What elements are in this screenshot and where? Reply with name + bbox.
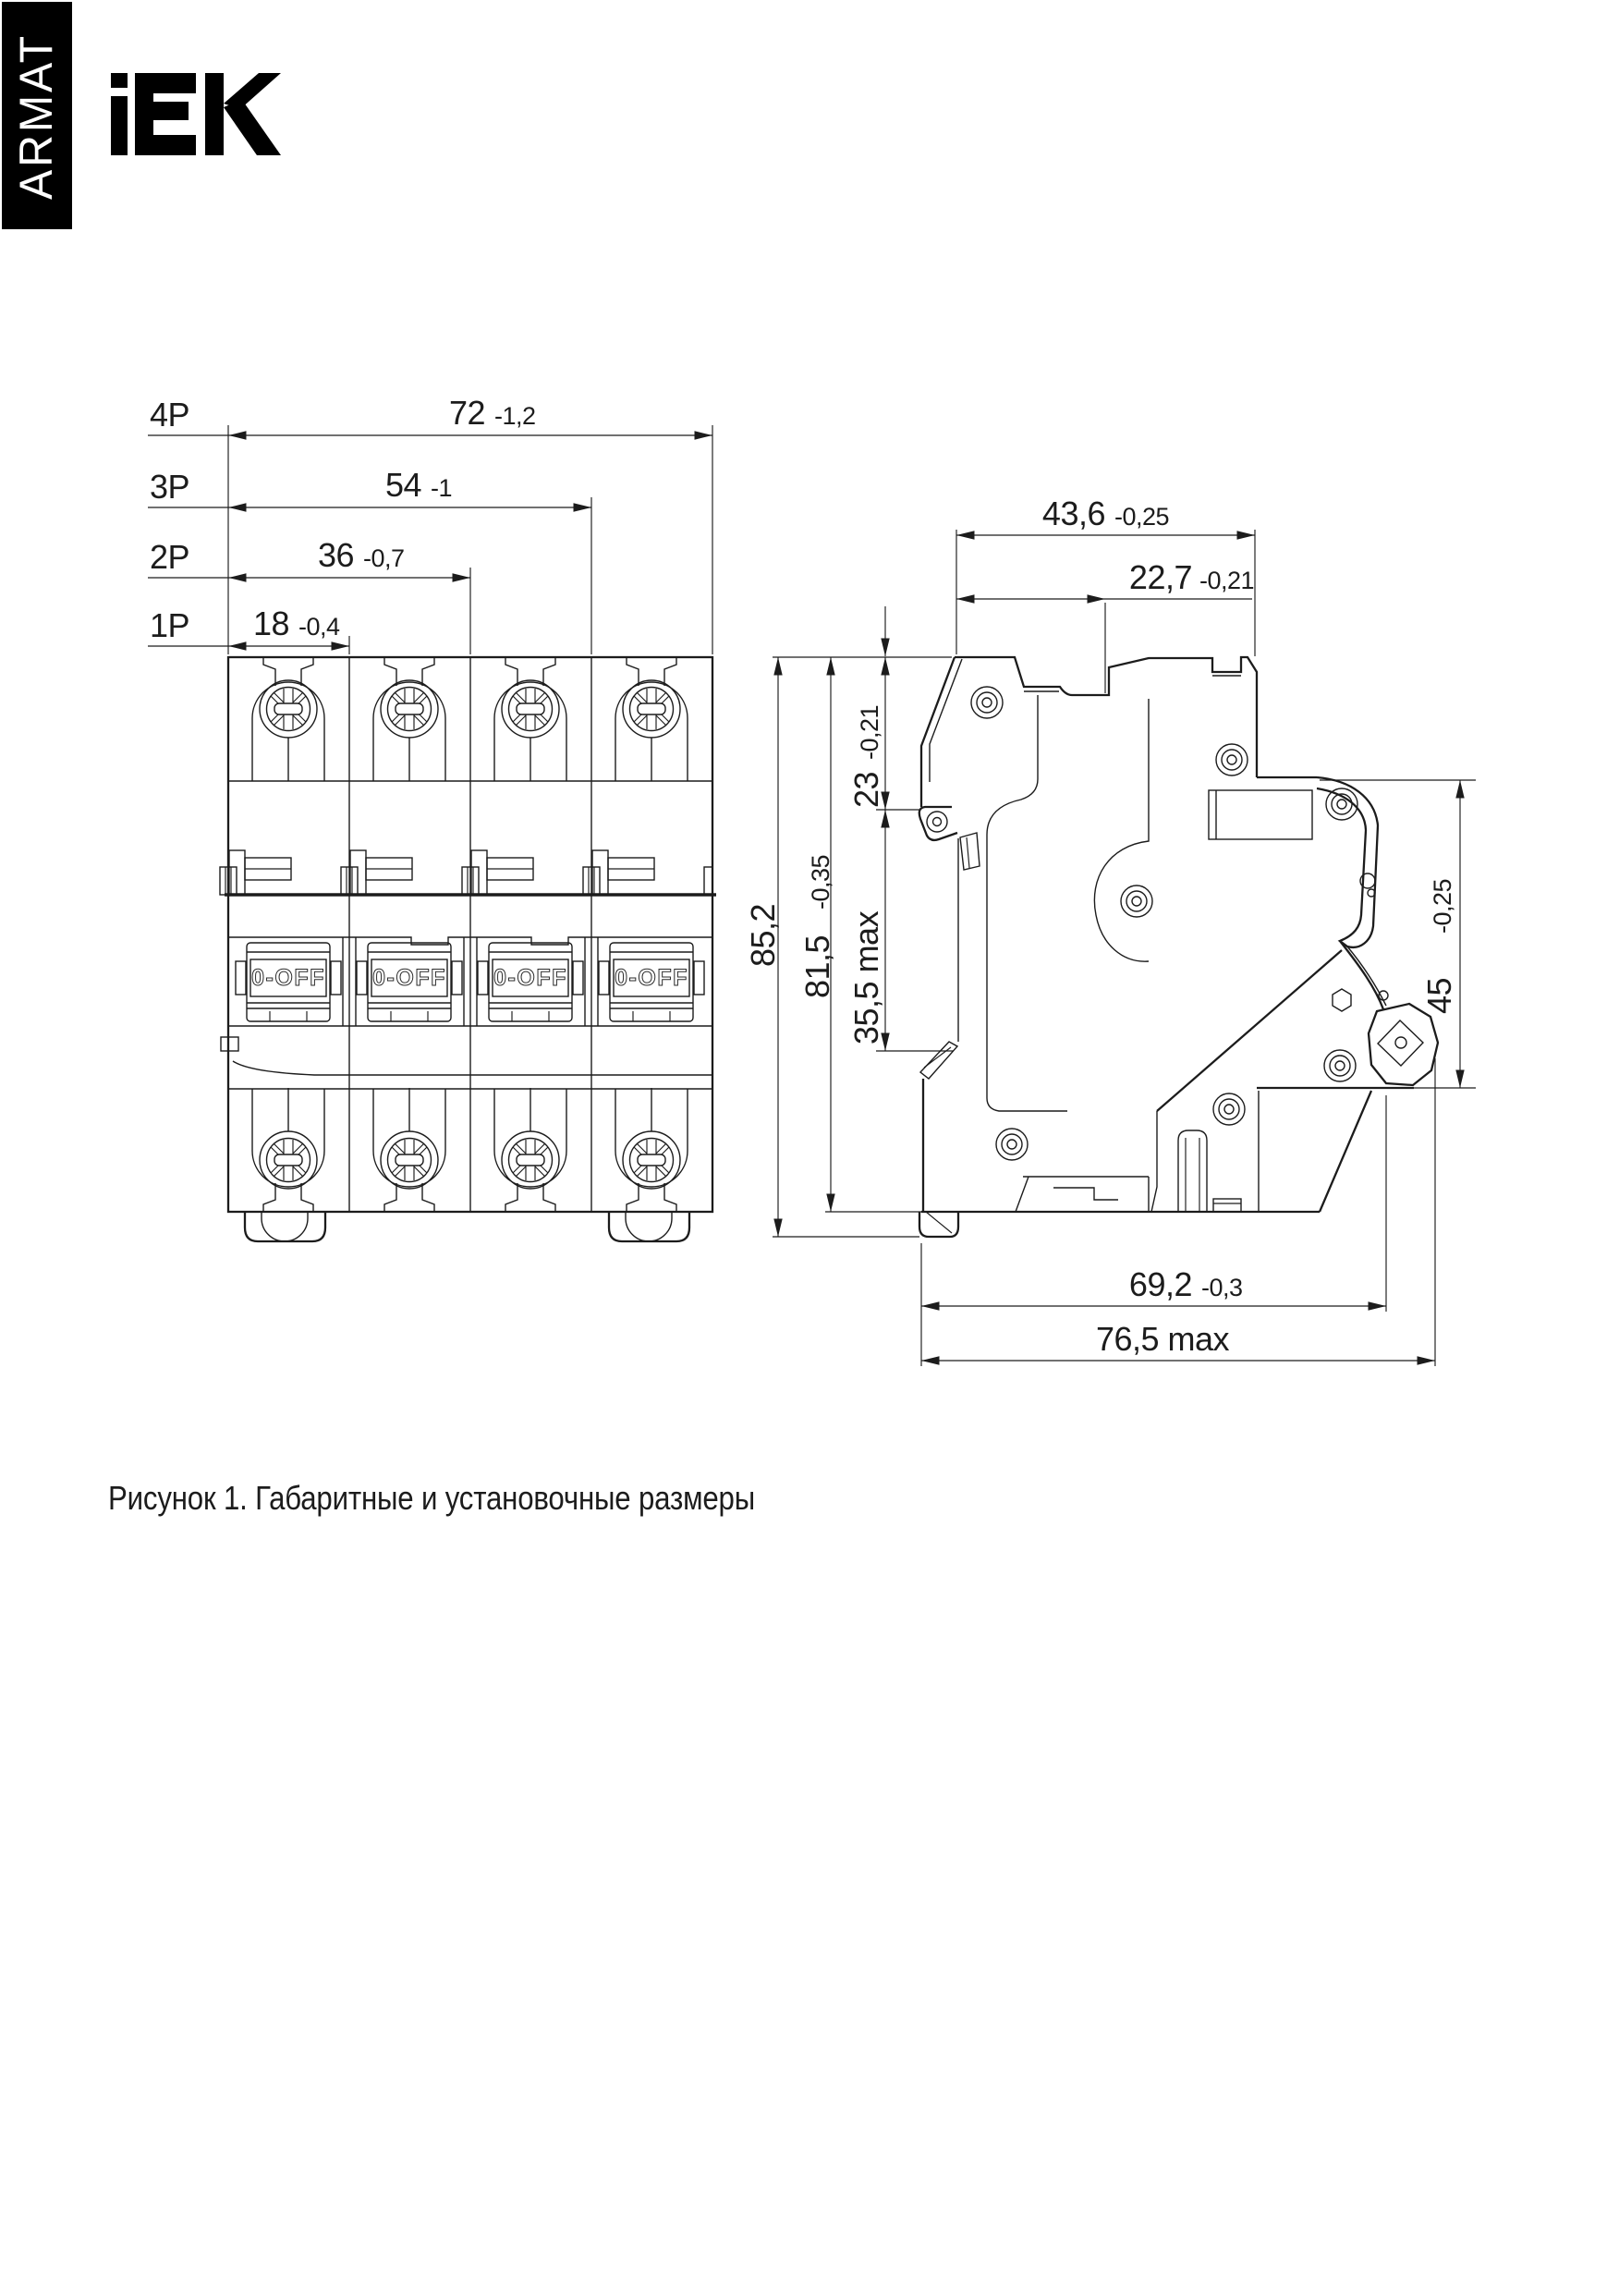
- dim-overall-width-value: 43,6: [1042, 495, 1105, 532]
- armat-banner-label: ARMAT: [10, 33, 62, 200]
- dim-2p-tolerance: -0,7: [363, 544, 405, 572]
- dim-2p-value: 36: [318, 536, 354, 574]
- side-dimensions: 43,6 -0,25 22,7 -0,21 85,2 81,5 -0,: [744, 495, 1476, 1366]
- dim-body-height-value: 81,5: [798, 935, 836, 998]
- iek-logo-letter-i: [111, 96, 128, 155]
- dim-rail-offset-tolerance: -0,21: [1199, 567, 1254, 594]
- base-block: [1213, 1199, 1241, 1212]
- iek-logo-letter-i-dot: [111, 73, 128, 88]
- mounting-foot-right: [609, 1212, 689, 1241]
- din-clip-4: [583, 850, 654, 895]
- brand-header: ARMAT: [2, 2, 281, 229]
- phillips-screw-top-4: [623, 680, 680, 738]
- terminal-funnel-bottom-4: [615, 1088, 688, 1212]
- terminal-funnel-top-2: [373, 657, 445, 781]
- dim-body-height: 81,5 -0,35: [798, 657, 836, 1212]
- dim-top-to-rail-value: 23: [847, 772, 885, 808]
- dim-overall-height-value: 85,2: [744, 904, 782, 967]
- front-view: 4P 72 -1,2 3P 54 -1 2P 36 -0,7 1: [148, 394, 716, 1241]
- iek-logo-letter-k: [205, 73, 281, 155]
- base-pedestal: [1016, 1177, 1149, 1212]
- dim-2p-label: 2P: [150, 538, 189, 576]
- toggle-label-4: 0-OFF: [615, 965, 688, 991]
- iek-logo-letter-e: [135, 73, 196, 155]
- terminal-funnel-top-3: [494, 657, 566, 781]
- arc-chamber-block: [1209, 790, 1312, 839]
- phillips-screw-top-3: [502, 680, 559, 738]
- rivet-7: [996, 1129, 1028, 1160]
- datasheet-page: ARMAT 4P: [0, 0, 1619, 2296]
- din-clip-3: [462, 850, 533, 895]
- phillips-screw-top-2: [381, 680, 438, 738]
- dim-1p-label: 1P: [150, 606, 189, 644]
- dim-rail-offset: 22,7 -0,21: [956, 558, 1254, 693]
- din-latch-lower: [920, 1042, 957, 1212]
- dim-3p-tolerance: -1: [431, 474, 452, 502]
- side-body: [919, 657, 1438, 1237]
- toggle-label-2: 0-OFF: [372, 965, 446, 991]
- dim-depth-value: 69,2: [1129, 1265, 1192, 1303]
- terminal-screw-side: [1369, 1004, 1438, 1085]
- rivet-2: [1216, 744, 1248, 776]
- figure-caption: Рисунок 1. Габаритные и установочные раз…: [108, 1479, 755, 1517]
- mounting-foot-left: [245, 1212, 325, 1241]
- din-latch-wedge: [960, 833, 980, 870]
- dim-2p: 2P 36 -0,7: [148, 536, 470, 578]
- dim-3p-value: 54: [385, 466, 421, 504]
- inner-contour-mechanism: [1094, 699, 1149, 961]
- rivet-1: [971, 687, 1003, 718]
- phillips-screw-bottom-4: [623, 1131, 680, 1189]
- inner-contour-left: [987, 695, 1067, 1111]
- dim-overall-width-tolerance: -0,25: [1114, 503, 1169, 531]
- side-left-edge: [921, 657, 955, 807]
- dim-1p-value: 18: [253, 605, 289, 642]
- rivet-6: [1213, 1093, 1245, 1125]
- dim-rail-zone-value: 35,5 max: [847, 910, 885, 1044]
- dim-top-to-rail-tolerance: -0,21: [856, 705, 883, 760]
- dimension-drawing: ARMAT 4P: [0, 0, 1619, 2296]
- toggle-label-1: 0-OFF: [251, 965, 325, 991]
- dim-4p-tolerance: -1,2: [494, 402, 536, 430]
- phillips-screw-top-1: [260, 680, 317, 738]
- dim-4p-label: 4P: [150, 396, 189, 434]
- dim-3p: 3P 54 -1: [148, 466, 591, 507]
- rivet-4: [1121, 885, 1152, 917]
- dim-terminal-zone: 45 -0,25: [1320, 780, 1476, 1088]
- hex-nub: [1333, 989, 1351, 1011]
- dim-4p: 4P 72 -1,2: [148, 394, 712, 435]
- dim-3p-label: 3P: [150, 468, 189, 506]
- phillips-screw-bottom-2: [381, 1131, 438, 1189]
- terminal-funnel-bottom-2: [373, 1088, 445, 1212]
- dim-max-depth-value: 76,5 max: [1096, 1320, 1230, 1358]
- phillips-screw-bottom-1: [260, 1131, 317, 1189]
- side-bottom-edge: [921, 1091, 1371, 1212]
- dim-terminal-zone-tolerance: -0,25: [1429, 879, 1456, 934]
- din-latch-upper: [919, 807, 957, 840]
- dim-rail-zone: 35,5 max: [847, 810, 885, 1051]
- terminal-funnel-top-4: [615, 657, 688, 781]
- side-view: 43,6 -0,25 22,7 -0,21 85,2 81,5 -0,: [744, 495, 1476, 1366]
- dim-1p-tolerance: -0,4: [298, 613, 340, 641]
- terminal-funnel-bottom-3: [494, 1088, 566, 1212]
- front-body: 0-OFF 0-OFF 0-OFF 0-OFF: [220, 657, 716, 1241]
- dim-1p: 1P 18 -0,4: [148, 605, 349, 646]
- din-foot-side: [919, 1212, 958, 1237]
- dim-overall-height: 85,2: [744, 657, 782, 1237]
- dim-4p-value: 72: [449, 394, 485, 432]
- busbar-channel: [1178, 1130, 1207, 1212]
- din-clip-1: [220, 850, 291, 895]
- terminal-funnel-bottom-1: [252, 1088, 324, 1212]
- dim-top-to-rail: 23 -0,21: [847, 606, 885, 810]
- terminal-funnel-top-1: [252, 657, 324, 781]
- dim-rail-offset-value: 22,7: [1129, 558, 1192, 596]
- dim-terminal-zone-value: 45: [1420, 978, 1458, 1014]
- front-pole-dimensions: 4P 72 -1,2 3P 54 -1 2P 36 -0,7 1: [148, 394, 712, 654]
- din-clip-2: [341, 850, 412, 895]
- iek-logo-icon: [111, 73, 281, 155]
- dim-body-height-tolerance: -0,35: [807, 855, 834, 910]
- terminal-claw: [1317, 777, 1388, 1009]
- toggle-label-3: 0-OFF: [493, 965, 567, 991]
- phillips-screw-bottom-3: [502, 1131, 559, 1189]
- dim-depth-tolerance: -0,3: [1201, 1274, 1243, 1301]
- rivet-5: [1324, 1050, 1356, 1081]
- module-separators: [349, 657, 591, 1212]
